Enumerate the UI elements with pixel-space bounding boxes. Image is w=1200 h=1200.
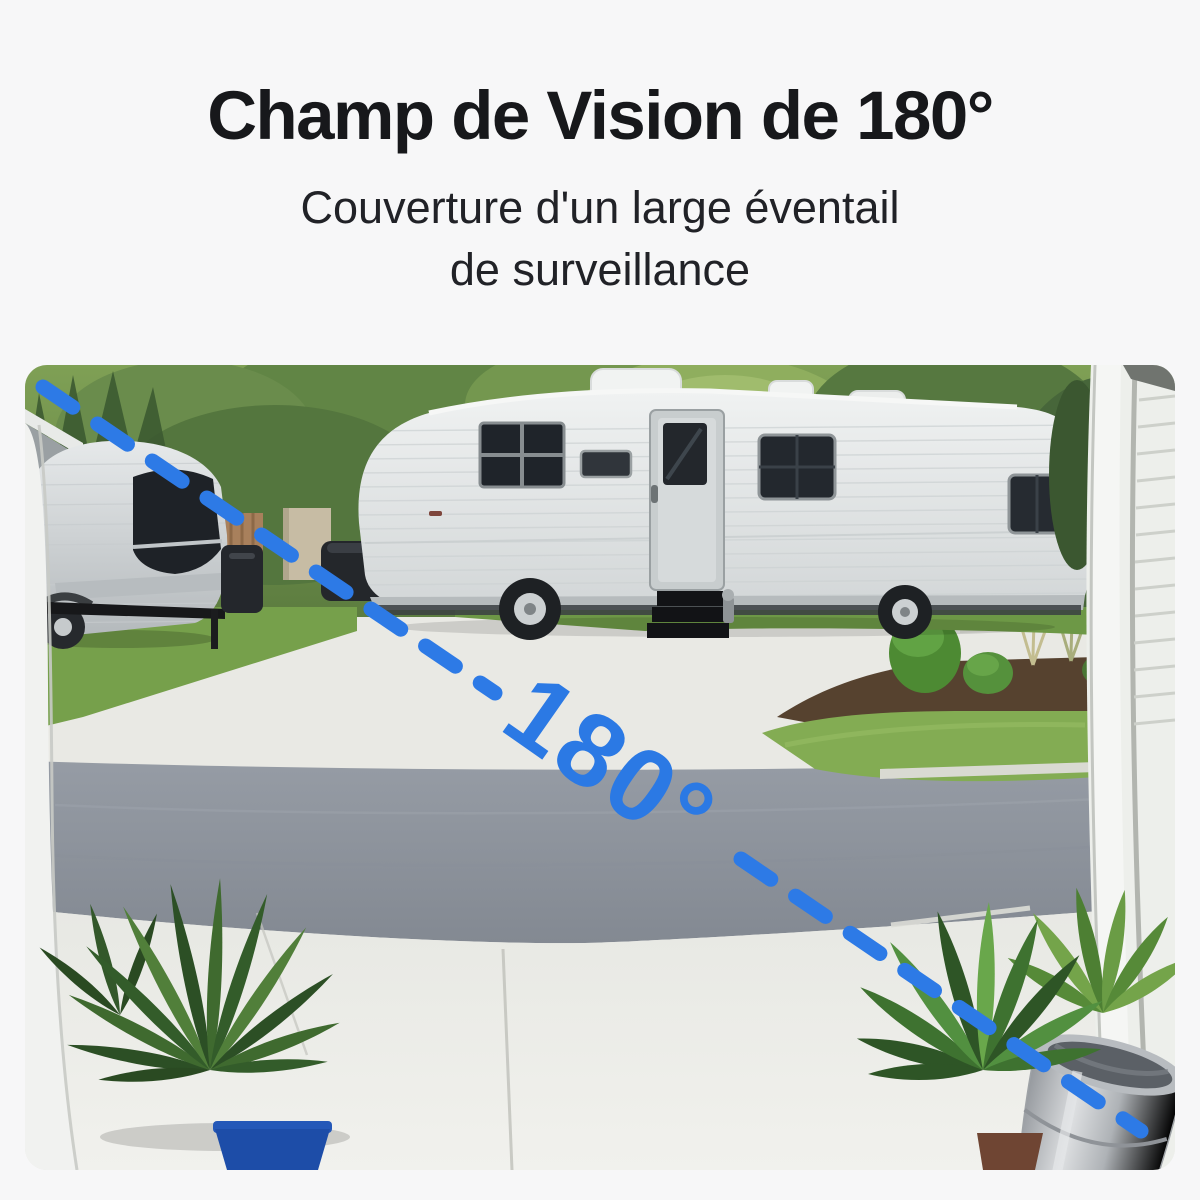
white-rv bbox=[355, 369, 1087, 640]
subtitle: Couverture d'un large éventail de survei… bbox=[0, 177, 1200, 301]
page-title: Champ de Vision de 180° bbox=[0, 76, 1200, 155]
marketing-banner: Champ de Vision de 180° Couverture d'un … bbox=[0, 0, 1200, 1200]
yard-bollard bbox=[722, 589, 734, 623]
header: Champ de Vision de 180° Couverture d'un … bbox=[0, 0, 1200, 301]
camera-view-photo: 180° bbox=[25, 365, 1175, 1170]
subtitle-line-2: de surveillance bbox=[0, 239, 1200, 301]
subtitle-line-1: Couverture d'un large éventail bbox=[0, 177, 1200, 239]
